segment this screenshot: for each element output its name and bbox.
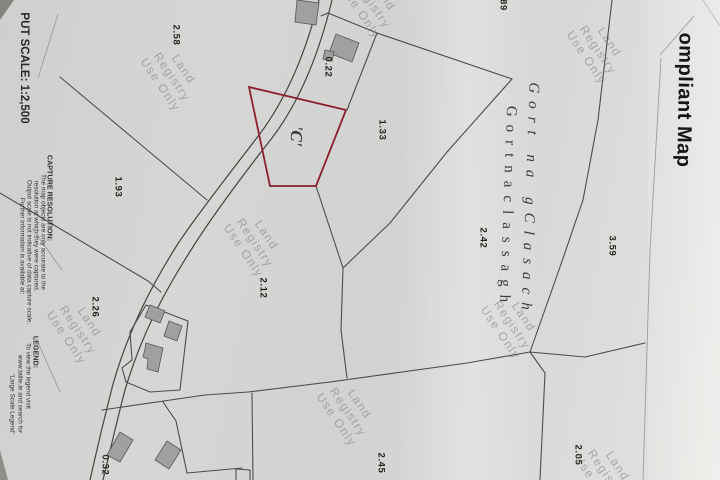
capture-resolution-heading: CAPTURE RESOLUTION: [46,155,55,241]
parcel-area-label: 0.32 [100,455,111,476]
land-registry-map-photo: ompliant Map PUT SCALE: 1:2,500 CAPTURE … [0,0,720,480]
capture-resolution-line: The map objects are only accurate to the [40,174,47,290]
parcel-area-label: 0.22 [323,57,334,78]
parcel-area-label: 2.42 [478,228,489,249]
highlighted-parcel-label: 'C' [285,125,306,147]
parcel-area-label: 1.93 [113,177,124,198]
output-scale-label: PUT SCALE: 1:2,500 [18,12,30,123]
capture-resolution-line: Further information is available at: [19,198,26,294]
parcel-area-label: 3.59 [607,236,618,257]
corner-shadow [0,0,14,20]
parcel-area-label: 1.33 [377,120,388,141]
legend-line: www.tailte.ie and search for [17,355,24,433]
legend-heading: LEGEND: [32,336,41,368]
road [90,0,332,480]
legend-line: To view the legend visit [25,343,32,409]
parcel-area-label: 2.12 [258,278,269,299]
legend-line: 'Large Scale Legend' [9,374,16,434]
map-title-partial: ompliant Map [671,32,696,167]
capture-resolution-line: Output scale is not indicative of data c… [26,180,33,324]
corner-shadow [0,450,8,480]
parcel-area-label: 89 [498,0,509,11]
capture-resolution-line: resolution at which they were captured. [33,181,40,292]
parcel-area-label: 2.45 [376,453,387,474]
